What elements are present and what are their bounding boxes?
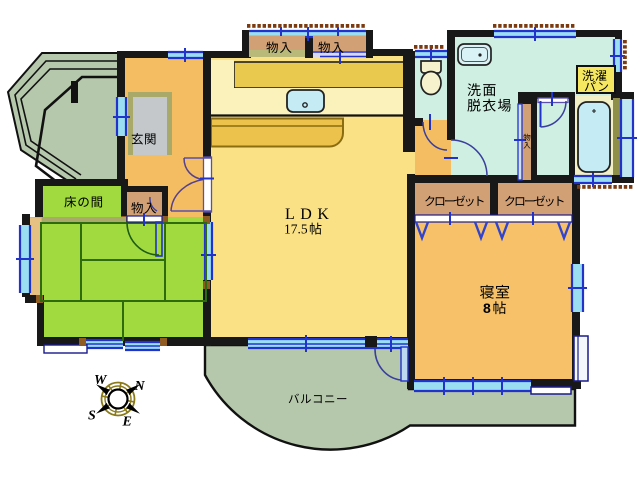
svg-text:17.5: 17.5: [284, 222, 308, 237]
svg-text:W: W: [94, 373, 108, 388]
svg-text:S: S: [88, 409, 96, 424]
svg-text:N: N: [134, 379, 146, 394]
svg-text:LDK: LDK: [285, 206, 334, 223]
svg-text:E: E: [122, 415, 132, 430]
svg-text:8: 8: [483, 300, 491, 316]
